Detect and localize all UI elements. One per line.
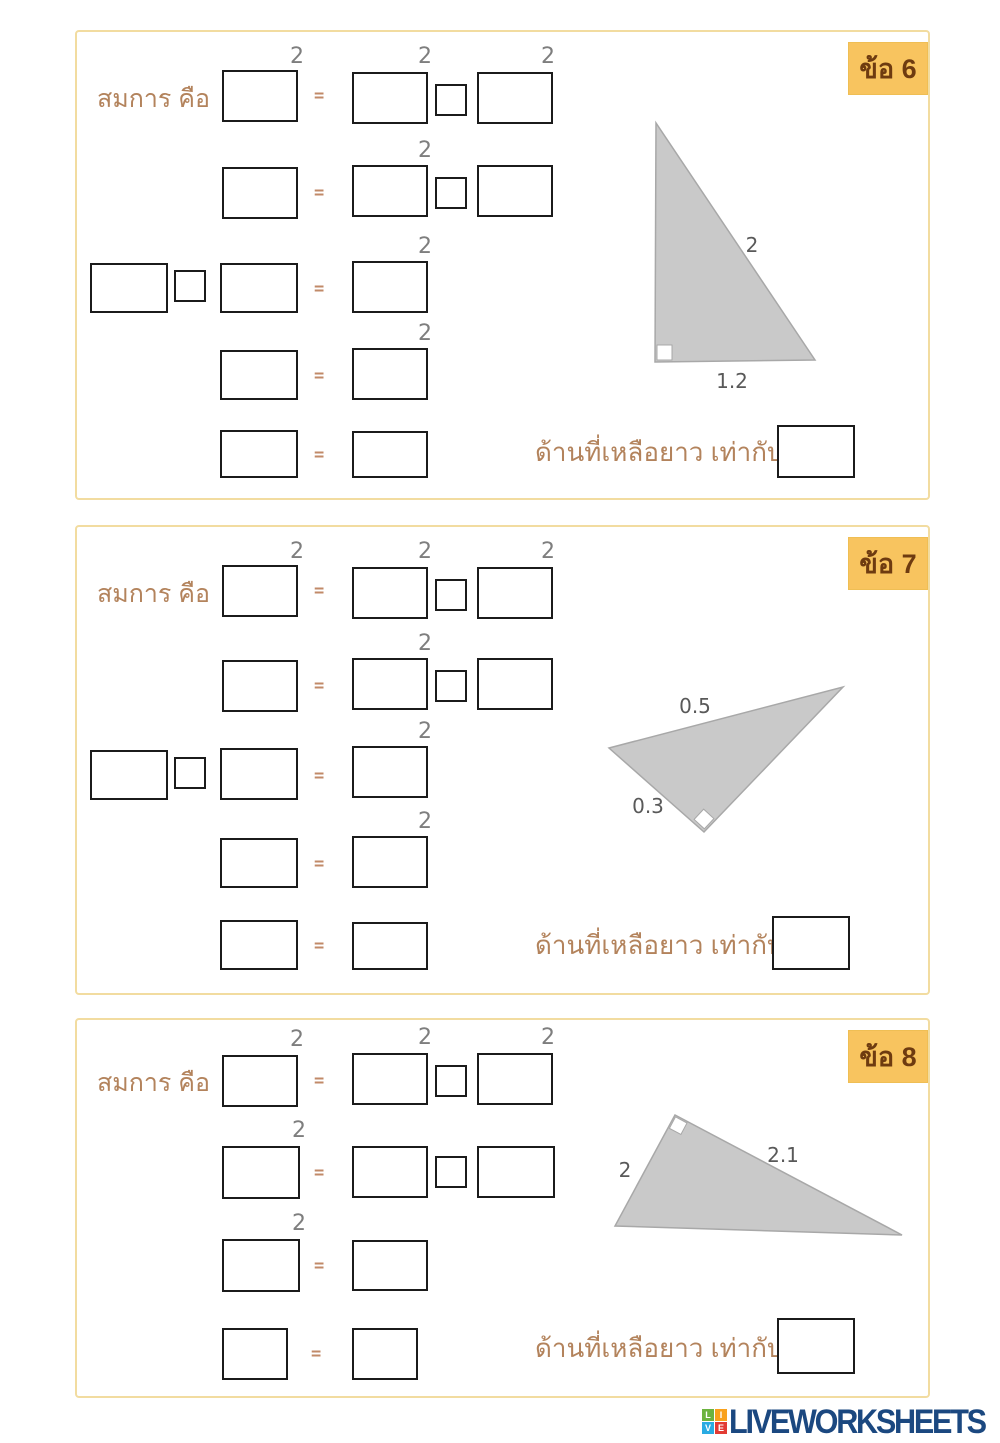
result-box-q7[interactable] — [772, 916, 850, 970]
superscript-2: 2 — [418, 633, 432, 655]
answer-box[interactable] — [352, 567, 428, 619]
equation-label-q7: สมการ คือ — [97, 579, 210, 609]
answer-box[interactable] — [352, 836, 428, 888]
superscript-2: 2 — [418, 140, 432, 162]
operator-box[interactable] — [174, 270, 206, 302]
equals-sign: = — [314, 88, 324, 105]
answer-box[interactable] — [352, 1240, 428, 1291]
side-label-leg: 0.3 — [632, 794, 664, 818]
answer-box[interactable] — [220, 920, 298, 970]
answer-prompt-q6: ด้านที่เหลือยาว เท่ากับ — [535, 437, 784, 468]
answer-box[interactable] — [222, 167, 298, 219]
equation-label-q6: สมการ คือ — [97, 84, 210, 114]
equals-sign: = — [314, 938, 324, 955]
answer-box[interactable] — [222, 1055, 298, 1107]
side-label-hypotenuse: 2.1 — [767, 1143, 799, 1167]
badge-q8: ข้อ 8 — [848, 1030, 928, 1083]
answer-box[interactable] — [220, 430, 298, 478]
result-box-q8[interactable] — [777, 1318, 855, 1374]
answer-box[interactable] — [477, 658, 553, 710]
result-box-q6[interactable] — [777, 425, 855, 478]
answer-box[interactable] — [222, 1146, 300, 1199]
equals-sign: = — [314, 678, 324, 695]
answer-box[interactable] — [222, 1328, 288, 1380]
equals-sign: = — [314, 281, 324, 298]
triangle-q7-figure: 0.5 0.3 — [590, 675, 860, 850]
superscript-2: 2 — [290, 1029, 304, 1051]
answer-box[interactable] — [352, 72, 428, 124]
superscript-2: 2 — [290, 541, 304, 563]
answer-box[interactable] — [477, 1053, 553, 1105]
answer-box[interactable] — [220, 838, 298, 888]
superscript-2: 2 — [292, 1213, 306, 1235]
triangle-q8-figure: 2 2.1 — [580, 1095, 920, 1250]
superscript-2: 2 — [541, 1027, 555, 1049]
superscript-2: 2 — [418, 1027, 432, 1049]
answer-box[interactable] — [477, 1146, 555, 1198]
answer-box[interactable] — [222, 660, 298, 712]
equals-sign: = — [314, 447, 324, 464]
superscript-2: 2 — [418, 541, 432, 563]
operator-box[interactable] — [435, 670, 467, 702]
superscript-2: 2 — [418, 236, 432, 258]
liveworksheets-logo: L I V E LIVEWORKSHEETS — [702, 1405, 1000, 1439]
operator-box[interactable] — [435, 177, 467, 209]
operator-box[interactable] — [174, 757, 206, 789]
side-label-leg: 2 — [619, 1158, 632, 1182]
answer-box[interactable] — [352, 1328, 418, 1380]
logo-letter-e: E — [715, 1422, 727, 1434]
operator-box[interactable] — [435, 579, 467, 611]
equals-sign: = — [314, 583, 324, 600]
triangle-q6-figure: 2 1.2 — [600, 110, 830, 395]
equals-sign: = — [314, 185, 324, 202]
equals-sign: = — [311, 1346, 321, 1363]
answer-box[interactable] — [477, 72, 553, 124]
operator-box[interactable] — [435, 1156, 467, 1188]
brand-text: LIVEWORKSHEETS — [729, 1405, 985, 1439]
superscript-2: 2 — [418, 323, 432, 345]
superscript-2: 2 — [418, 46, 432, 68]
triangle-shape — [615, 1115, 902, 1235]
answer-box[interactable] — [222, 565, 298, 617]
answer-box[interactable] — [222, 70, 298, 122]
badge-q6: ข้อ 6 — [848, 42, 928, 95]
equals-sign: = — [314, 1073, 324, 1090]
answer-box[interactable] — [222, 1239, 300, 1292]
answer-box[interactable] — [352, 165, 428, 217]
answer-box[interactable] — [352, 746, 428, 798]
answer-box[interactable] — [352, 431, 428, 478]
answer-box[interactable] — [352, 1146, 428, 1198]
answer-box[interactable] — [220, 263, 298, 313]
answer-box[interactable] — [352, 922, 428, 970]
equals-sign: = — [314, 1165, 324, 1182]
right-angle-icon — [657, 345, 672, 360]
equals-sign: = — [314, 768, 324, 785]
operator-box[interactable] — [435, 84, 467, 116]
superscript-2: 2 — [418, 811, 432, 833]
logo-letter-i: I — [715, 1409, 727, 1421]
equals-sign: = — [314, 856, 324, 873]
side-label-base: 1.2 — [716, 369, 748, 393]
superscript-2: 2 — [292, 1120, 306, 1142]
equals-sign: = — [314, 368, 324, 385]
superscript-2: 2 — [418, 721, 432, 743]
answer-box[interactable] — [352, 261, 428, 313]
answer-box[interactable] — [352, 658, 428, 710]
side-label-hypotenuse: 0.5 — [679, 694, 711, 718]
answer-box[interactable] — [477, 567, 553, 619]
answer-prompt-q7: ด้านที่เหลือยาว เท่ากับ — [535, 930, 784, 961]
logo-grid-icon: L I V E — [702, 1409, 727, 1434]
answer-box[interactable] — [90, 750, 168, 800]
side-label-hypotenuse: 2 — [746, 233, 759, 257]
answer-prompt-q8: ด้านที่เหลือยาว เท่ากับ — [535, 1333, 784, 1364]
answer-box[interactable] — [90, 263, 168, 313]
answer-box[interactable] — [220, 350, 298, 400]
logo-letter-l: L — [702, 1409, 714, 1421]
equation-label-q8: สมการ คือ — [97, 1068, 210, 1098]
superscript-2: 2 — [541, 46, 555, 68]
superscript-2: 2 — [290, 46, 304, 68]
answer-box[interactable] — [352, 1053, 428, 1105]
answer-box[interactable] — [352, 348, 428, 400]
superscript-2: 2 — [541, 541, 555, 563]
answer-box[interactable] — [477, 165, 553, 217]
answer-box[interactable] — [220, 748, 298, 800]
triangle-shape — [655, 123, 815, 362]
logo-letter-v: V — [702, 1422, 714, 1434]
operator-box[interactable] — [435, 1065, 467, 1097]
worksheet-page: ข้อ 6 สมการ คือ 2 = 2 2 = 2 = 2 = 2 = 2 … — [0, 0, 1000, 1443]
badge-q7: ข้อ 7 — [848, 537, 928, 590]
equals-sign: = — [314, 1258, 324, 1275]
